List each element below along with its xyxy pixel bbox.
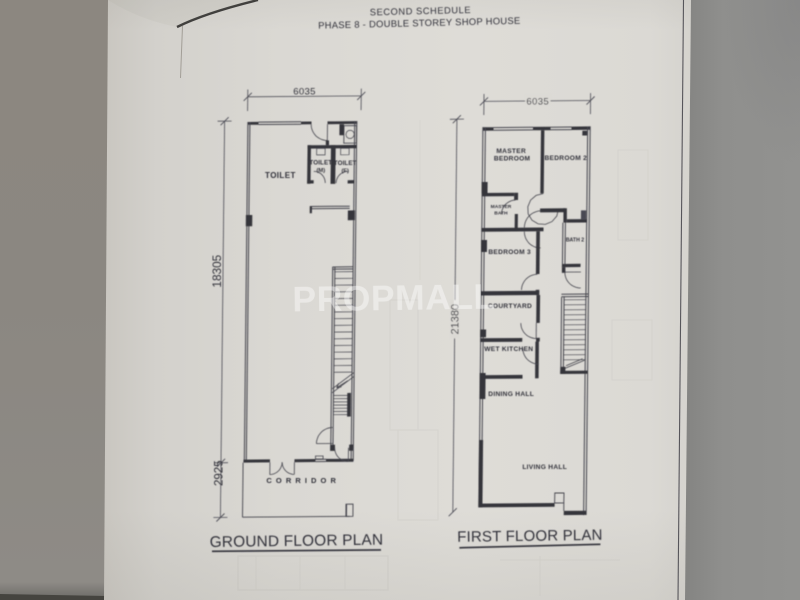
svg-text:BEDROOM 2: BEDROOM 2 — [544, 155, 587, 162]
svg-text:PROPMALL: PROPMALL — [292, 277, 496, 320]
svg-text:6035: 6035 — [293, 87, 316, 98]
svg-text:BATH 2: BATH 2 — [566, 238, 584, 244]
svg-text:2925: 2925 — [214, 460, 226, 486]
svg-text:DINING HALL: DINING HALL — [488, 391, 534, 398]
svg-text:BATH: BATH — [494, 210, 508, 216]
svg-text:MASTER: MASTER — [491, 204, 512, 210]
svg-text:BEDROOM 3: BEDROOM 3 — [488, 249, 531, 256]
svg-text:TOILET: TOILET — [265, 171, 296, 180]
svg-text:CORRIDOR: CORRIDOR — [266, 476, 340, 485]
svg-text:BEDROOM: BEDROOM — [494, 155, 531, 162]
svg-text:18305: 18305 — [210, 254, 224, 287]
svg-text:6035: 6035 — [526, 96, 549, 107]
svg-text:(M): (M) — [316, 168, 325, 174]
svg-text:TOILET: TOILET — [309, 160, 332, 167]
svg-text:(F): (F) — [341, 168, 348, 174]
svg-text:MASTER: MASTER — [496, 148, 526, 155]
svg-text:GROUND FLOOR PLAN: GROUND FLOOR PLAN — [210, 532, 384, 551]
svg-text:TOILET: TOILET — [334, 160, 357, 167]
svg-text:LIVING HALL: LIVING HALL — [522, 464, 567, 471]
svg-text:FIRST FLOOR PLAN: FIRST FLOOR PLAN — [457, 527, 603, 546]
svg-text:WET KITCHEN: WET KITCHEN — [484, 346, 533, 353]
